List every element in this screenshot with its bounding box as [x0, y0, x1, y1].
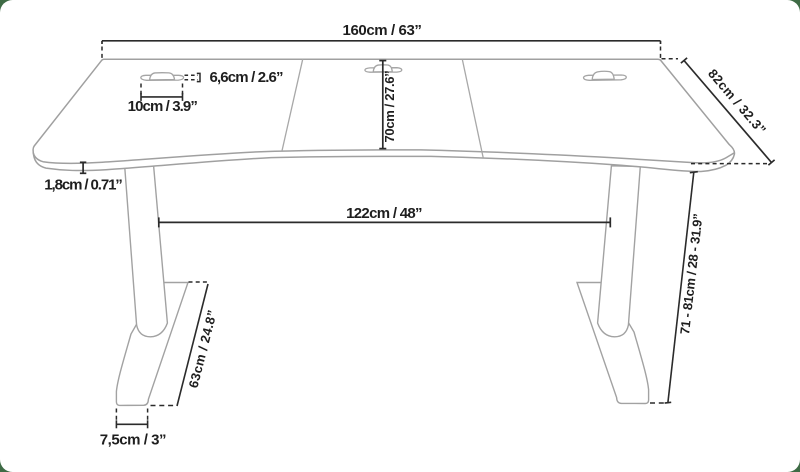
- svg-text:122cm / 48”: 122cm / 48”: [346, 205, 422, 222]
- svg-text:160cm / 63”: 160cm / 63”: [343, 22, 422, 39]
- svg-text:1,8cm / 0.71”: 1,8cm / 0.71”: [44, 177, 122, 194]
- svg-text:7,5cm / 3”: 7,5cm / 3”: [100, 432, 166, 449]
- svg-text:6,6cm / 2.6”: 6,6cm / 2.6”: [210, 69, 284, 86]
- svg-text:10cm / 3.9”: 10cm / 3.9”: [128, 98, 198, 115]
- svg-text:70cm / 27.6”: 70cm / 27.6”: [382, 71, 397, 143]
